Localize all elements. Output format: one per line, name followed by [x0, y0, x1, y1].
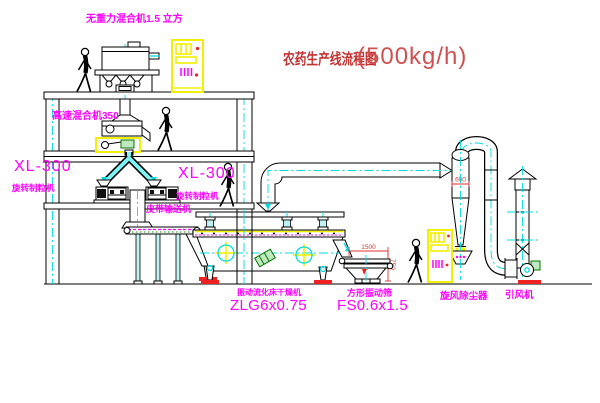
worker-floor2 [158, 107, 172, 150]
granulator-left-model: XL-300 [14, 159, 72, 175]
exhaust-duct [257, 163, 456, 211]
granulator-right [144, 180, 180, 203]
granulator-left-name: 旋转制粒机 [12, 184, 55, 193]
gravity-mixer-label: 无重力混合机1.5 立方 [86, 15, 183, 25]
worker-roof [77, 48, 91, 91]
sieve-length-dim: 1500 [361, 244, 376, 251]
cyclone-outlet-pipe [462, 143, 514, 269]
worker-ground [408, 239, 422, 282]
cyclone-label: 旋风除尘器 [440, 292, 488, 302]
granulator-left [94, 180, 130, 203]
sieve-model: FS0.6x1.5 [337, 298, 408, 313]
diagram-capacity: (500kg/h) [357, 45, 467, 69]
granulator-right-name: 旋转制粒机 [176, 192, 219, 201]
fan-label: 引风机 [505, 291, 534, 301]
high-speed-mixer-label: 高速混合机350 [52, 112, 119, 122]
control-cabinet-top [172, 40, 203, 92]
granulator-right-model: XL-300 [178, 166, 236, 182]
control-cabinet-right [428, 230, 452, 282]
fluid-bed-dryer [186, 212, 352, 284]
dryer-name: 振动流化床干燥机 [237, 289, 301, 297]
high-speed-mixer [96, 99, 150, 152]
dryer-model: ZLG6x0.75 [230, 298, 307, 313]
belt-conveyor-label: 皮带输送机 [146, 205, 191, 214]
cad-canvas: 600 [0, 0, 600, 403]
